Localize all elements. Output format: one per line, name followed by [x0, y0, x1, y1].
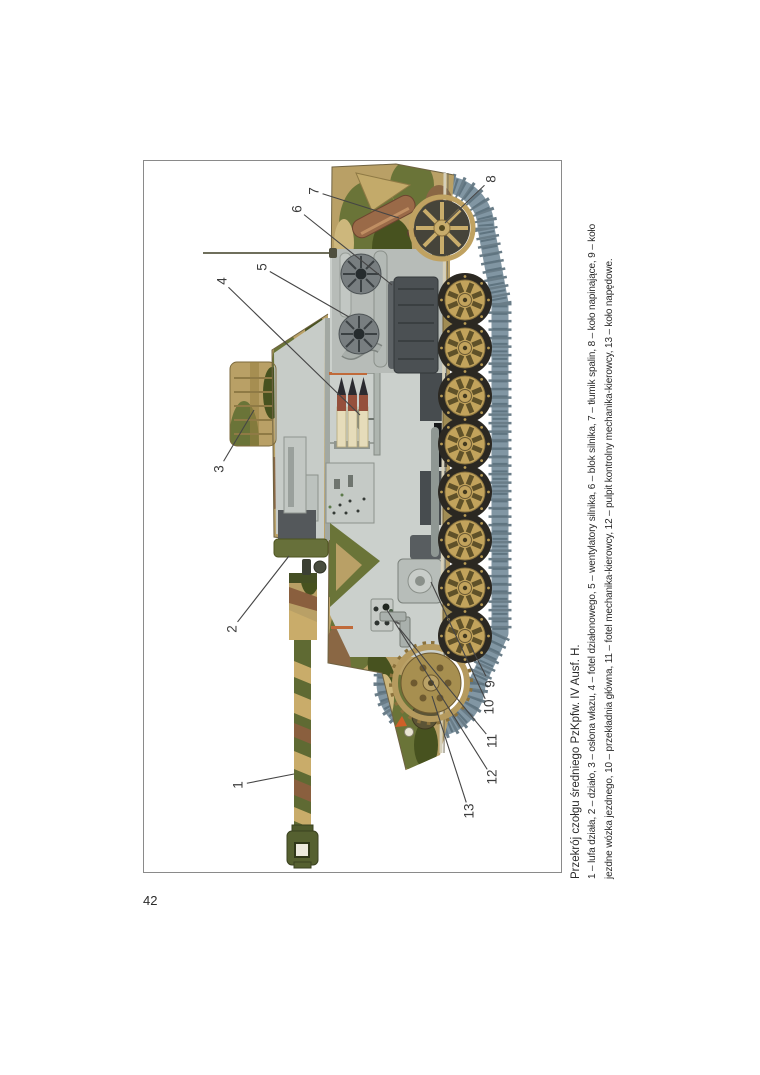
engine-block [394, 277, 438, 373]
part-number-label: 7 [307, 187, 322, 195]
hull-mg-ball-mount [314, 561, 326, 573]
part-number-label: 10 [482, 699, 497, 714]
part-number-label: 4 [215, 277, 230, 285]
firewall-front [331, 626, 353, 629]
part-number-label: 12 [485, 769, 500, 784]
gun-barrel-camo-bands [294, 637, 311, 833]
engine-bay [332, 249, 446, 373]
driver-visor [302, 559, 311, 575]
road-wheel [438, 465, 492, 519]
road-wheel [438, 417, 492, 471]
figure-frame: 12345678910111213 [143, 160, 562, 873]
ammo-shells [334, 377, 370, 449]
idler-wheel [411, 197, 473, 259]
road-wheel [438, 273, 492, 327]
figure-caption: Przekrój czołgu średniego PzKpfw. IV Aus… [567, 144, 624, 879]
figure-caption-legend-line: 1 – lufa działa, 2 – działo, 3 – osłona … [585, 144, 602, 879]
part-number-label: 2 [225, 625, 240, 633]
part-number-label: 1 [231, 781, 246, 789]
part-number-label: 6 [290, 205, 305, 213]
part-number-label: 8 [484, 175, 499, 183]
part-number-label: 9 [483, 680, 498, 688]
part-number-label: 11 [485, 734, 500, 748]
headlight [405, 728, 414, 737]
turret-basket-floor [374, 359, 380, 455]
road-wheel [438, 321, 492, 375]
drive-shaft [431, 427, 439, 557]
radio-antenna [203, 248, 337, 258]
tank-cutaway-illustration: 12345678910111213 [144, 161, 562, 873]
road-wheel [438, 369, 492, 423]
part-number-label: 5 [255, 263, 270, 271]
page-number: 42 [143, 893, 157, 908]
book-page: 12345678910111213 Przekrój czołgu średni… [0, 0, 760, 1075]
muzzle-brake [287, 825, 318, 868]
road-wheel [438, 513, 492, 567]
road-wheel [438, 561, 492, 615]
part-number-label: 13 [462, 803, 477, 818]
gun-mantlet [274, 539, 328, 557]
figure-caption-title: Przekrój czołgu średniego PzKpfw. IV Aus… [567, 144, 585, 879]
part-number-label: 3 [212, 465, 227, 473]
figure-caption-legend-line: jezdne wózka jezdnego, 10 – przekładnia … [602, 144, 619, 879]
transmission-gearbox [398, 559, 442, 603]
engine-fan [339, 314, 379, 354]
